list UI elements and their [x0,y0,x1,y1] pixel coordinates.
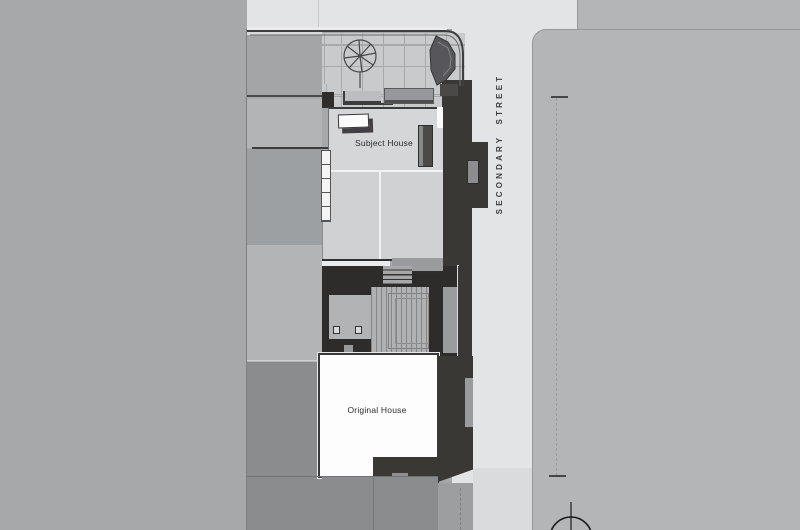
site-plan-canvas: Subject House Original House SECONDARY S… [0,0,800,530]
hedge-base [440,84,458,96]
spiral-stair-icon [344,40,376,88]
north-indicator-icon [550,502,592,530]
hedge-mass [430,36,455,85]
site-boundary-inner-line [250,35,460,86]
linework-overlay [0,0,800,530]
